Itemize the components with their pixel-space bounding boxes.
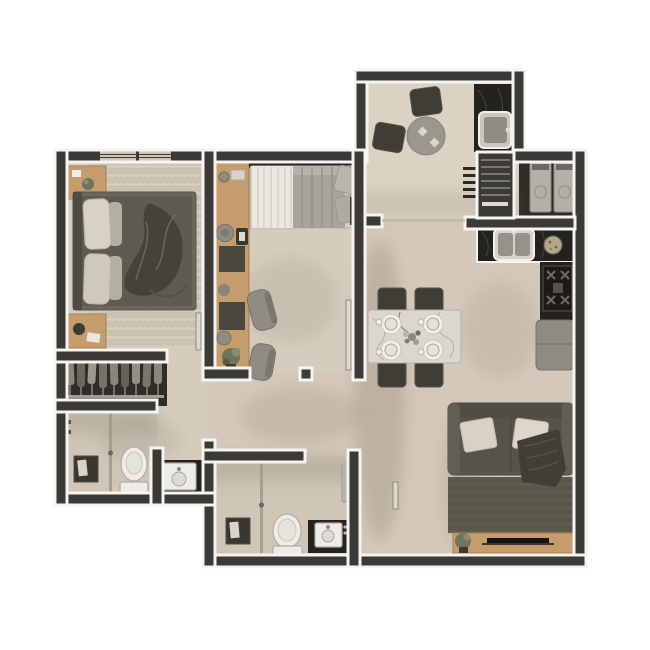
folded-towel [77,460,88,477]
vanity [308,520,350,553]
master-bed [73,192,196,310]
bottle [343,531,346,534]
window [139,152,171,161]
mirror-icon [219,172,229,182]
utility-shaft [477,152,514,218]
dining-chair [415,361,443,387]
master-bedroom [67,164,202,348]
bowl [218,284,230,296]
sofa-back [448,403,574,419]
control-panel [553,283,563,293]
stool-center [221,229,229,237]
wall-jamb-bedroom2-door [300,368,312,380]
floor-plan [0,0,650,650]
sofa-arm [448,403,460,475]
balcony-sink [479,112,511,148]
plant-leaf [84,180,89,185]
toilet-seat [126,452,142,474]
tv-console [453,533,574,553]
wall-closet-north [55,350,167,362]
wall-east-outer [574,150,586,567]
guest-bed [249,160,363,228]
dryer [554,162,575,212]
basin [322,530,334,542]
wall-bedroom2-south [203,368,250,380]
wall-south-outer [203,555,586,567]
toilet [120,447,148,493]
pillow [83,198,112,249]
toilet-seat [278,519,296,541]
wall-balcony-north [355,70,525,82]
bistro-table [407,117,445,155]
sofa [448,403,574,487]
cooktop [543,266,572,311]
stool [217,331,231,345]
desk-mat [219,246,245,272]
wall-stub-balcony-door [365,215,382,227]
tv-stand [482,543,554,545]
wall-balcony-west [355,70,367,162]
balcony-door-threshold [382,219,465,222]
refrigerator [536,320,574,370]
faucet-icon [506,128,511,133]
toilet [273,514,302,556]
faucet-icon [177,467,181,471]
desk-mat [219,302,245,330]
dining-chair [378,361,406,387]
wall-bedroom-divider [203,150,215,380]
pillow [83,254,111,305]
tv [487,538,549,543]
wall-southwest-outer [55,493,215,505]
headboard [73,192,82,310]
bottle [343,525,346,528]
balcony-chair [372,122,406,154]
sofa-pillow [460,417,498,452]
wall-bathroom2-north [203,450,305,462]
lamp-icon [73,323,85,335]
glass-handle [259,503,264,508]
note-card [72,170,81,177]
glass-handle [108,451,113,456]
wall-bedroom2-east [353,150,365,380]
desk-tray [231,170,245,180]
wall-balcony-east [513,70,525,162]
living-room [448,403,576,553]
kitchen-sink [494,229,534,260]
door-leaf-master [196,313,201,350]
door-leaf-bedroom2 [346,300,351,370]
plant-icon [82,178,94,190]
window [100,152,136,161]
round-basin [172,472,186,486]
wall-closet-south [55,400,157,412]
faucet-icon [326,525,330,529]
book [86,332,100,343]
shower-bench [74,456,98,482]
shower-bench [226,518,250,544]
round-bowl [544,236,562,254]
toilet-tank [120,482,148,493]
closet-rail [64,395,164,398]
door-leaf-bathroom2 [393,482,398,509]
balcony-chair [409,86,442,117]
wall-west-outer [55,150,67,505]
wall-bathroom2-east [348,450,360,567]
nightstand-bottom [67,314,106,348]
shaft-bright-shelf [482,202,508,206]
wall-niche-west [151,448,163,505]
phone-tray [236,228,248,245]
folded-towel [229,522,239,539]
washer [530,162,551,212]
